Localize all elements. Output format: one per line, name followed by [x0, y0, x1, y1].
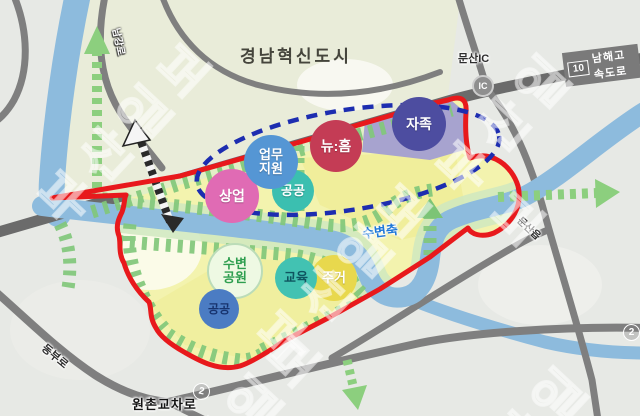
expressway-name: 남해고속도로	[591, 45, 637, 82]
junction-label: 원촌교차로	[132, 394, 197, 413]
zone-residential: 주거	[311, 255, 357, 301]
zone-business-support: 업무 지원	[244, 135, 298, 189]
arrow-east-icon	[595, 179, 620, 208]
zone-education: 교육	[275, 257, 317, 299]
plan-map: 수변 공원 공공 주거 교육 상업 공공 업무 지원 뉴:홈 자족 경남혁신도시…	[0, 0, 640, 416]
road-nw-corner	[0, 0, 25, 124]
zone-public-lower: 공공	[199, 289, 239, 329]
interchange-label: 문산IC	[458, 50, 489, 66]
route-10-badge: 10	[567, 59, 590, 76]
arrow-south-icon	[342, 385, 367, 410]
region-title: 경남혁신도시	[240, 42, 352, 67]
interchange-badge: IC	[472, 75, 494, 97]
route-2-badge-east: 2	[623, 324, 640, 341]
zone-self-sufficiency: 자족	[392, 97, 446, 151]
zone-new-home: 뉴:홈	[310, 120, 362, 172]
